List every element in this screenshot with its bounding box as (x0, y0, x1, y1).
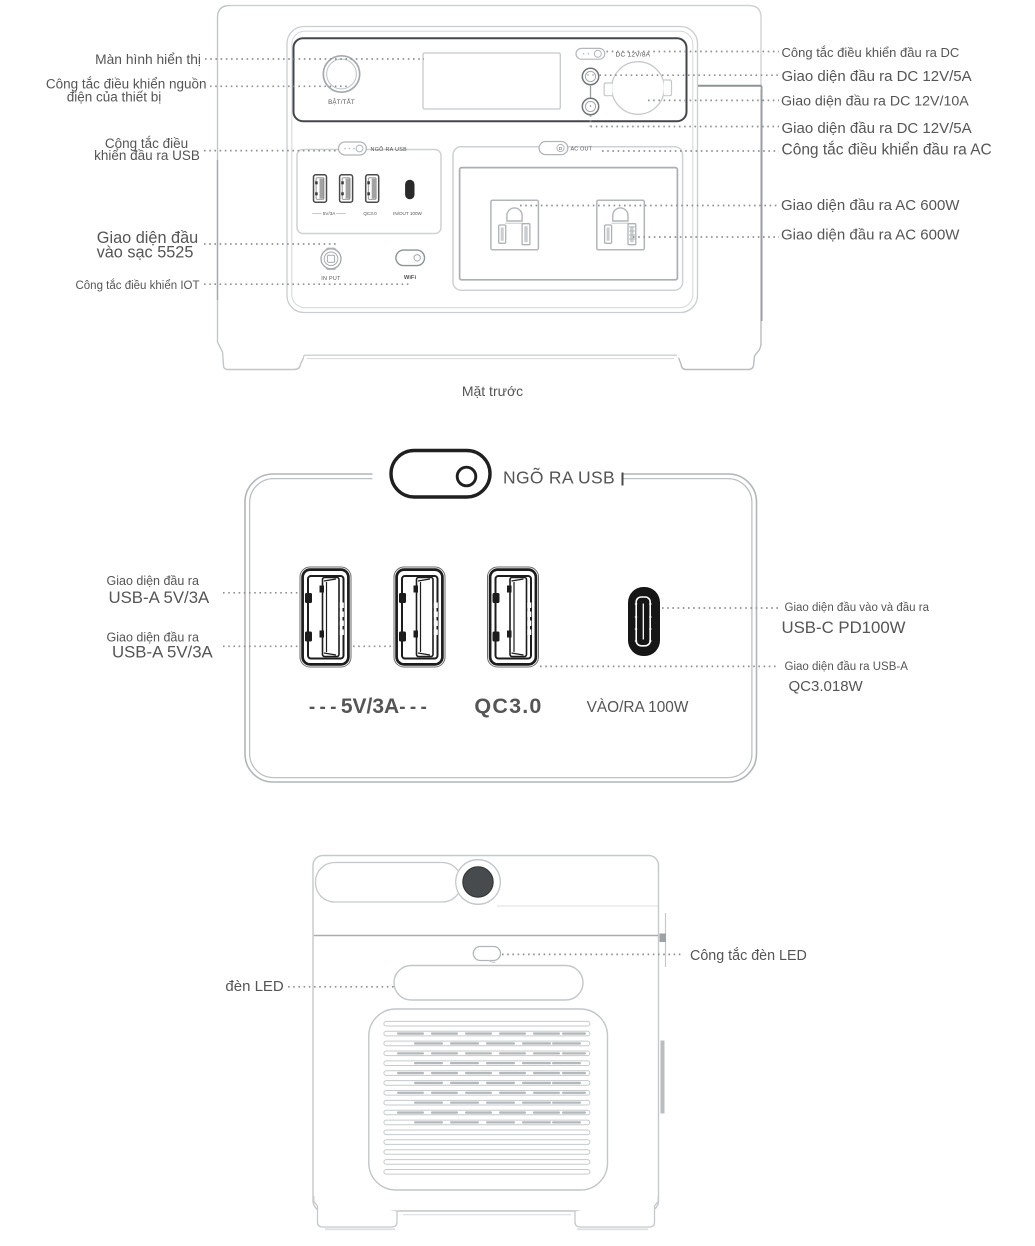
svg-text:Mặt trước: Mặt trước (462, 383, 523, 399)
svg-text:---5V/3A---: ---5V/3A--- (309, 695, 431, 718)
svg-text:Giao diện đầu ra AC 600W: Giao diện đầu ra AC 600W (781, 197, 960, 214)
svg-text:QC3.018W: QC3.018W (789, 678, 864, 695)
svg-text:khiển đầu ra USB: khiển đầu ra USB (94, 148, 200, 163)
svg-text:Màn hình hiển thị: Màn hình hiển thị (95, 52, 201, 67)
svg-text:Giao diện đầu ra USB-A: Giao diện đầu ra USB-A (785, 661, 909, 673)
svg-text:Giao diện đầu ra AC 600W: Giao diện đầu ra AC 600W (781, 227, 960, 244)
svg-text:NGÕ RA USB: NGÕ RA USB (503, 467, 615, 488)
svg-text:Giao diện đầu vào và đầu ra: Giao diện đầu vào và đầu ra (785, 602, 930, 614)
svg-text:VÀO/RA 100W: VÀO/RA 100W (587, 699, 689, 716)
svg-text:Công tắc điều khiển đầu ra DC: Công tắc điều khiển đầu ra DC (782, 45, 960, 60)
svg-text:IN PUT: IN PUT (321, 276, 341, 282)
svg-text:USB-C PD100W: USB-C PD100W (782, 618, 906, 637)
svg-text:AC OUT: AC OUT (571, 147, 593, 153)
svg-text:USB-A 5V/3A: USB-A 5V/3A (109, 588, 211, 607)
svg-text:WiFi: WiFi (404, 275, 417, 281)
svg-text:QC3.0: QC3.0 (363, 211, 377, 216)
svg-text:Giao diện đầu ra DC 12V/5A: Giao diện đầu ra DC 12V/5A (782, 68, 972, 85)
svg-text:QC3.0: QC3.0 (474, 694, 542, 718)
svg-text:USB-A 5V/3A: USB-A 5V/3A (112, 642, 214, 661)
svg-text:vào sạc 5525: vào sạc 5525 (97, 243, 194, 261)
svg-text:—— 5V/3A ——: —— 5V/3A —— (312, 211, 346, 216)
svg-text:Giao diện đầu ra DC 12V/10A: Giao diện đầu ra DC 12V/10A (781, 94, 969, 110)
svg-text:Công tắc điều khiển đầu ra AC: Công tắc điều khiển đầu ra AC (782, 141, 992, 158)
svg-text:NGÕ RA USB: NGÕ RA USB (371, 146, 408, 153)
svg-text:Giao diện đầu ra DC 12V/5A: Giao diện đầu ra DC 12V/5A (782, 120, 972, 137)
svg-text:IN/OUT 100W: IN/OUT 100W (393, 211, 422, 216)
svg-text:đèn LED: đèn LED (225, 978, 284, 995)
svg-text:Công tắc đèn LED: Công tắc đèn LED (690, 947, 807, 964)
svg-text:DC 12V/8A: DC 12V/8A (616, 52, 651, 59)
svg-text:Giao diện đầu ra: Giao diện đầu ra (107, 574, 199, 588)
svg-text:BẬT/TẮT: BẬT/TẮT (328, 98, 355, 106)
svg-text:Công tắc điều khiển IOT: Công tắc điều khiển IOT (75, 279, 199, 292)
svg-text:điện của thiết bị: điện của thiết bị (67, 90, 162, 105)
